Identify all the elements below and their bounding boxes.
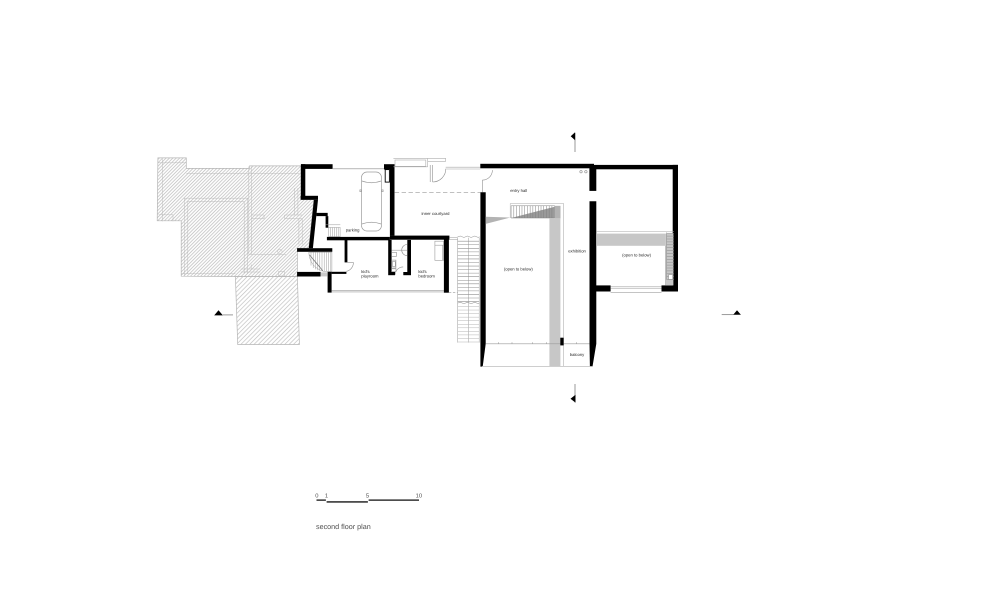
svg-text:bedroom: bedroom <box>418 273 435 278</box>
svg-text:(open to below): (open to below) <box>504 267 533 272</box>
svg-text:1: 1 <box>325 494 328 500</box>
svg-text:inner courtyard: inner courtyard <box>422 211 451 216</box>
svg-text:0: 0 <box>315 493 318 500</box>
svg-text:entry hall: entry hall <box>510 188 527 193</box>
svg-text:10: 10 <box>416 493 422 500</box>
svg-text:(open to below): (open to below) <box>622 252 651 257</box>
svg-text:exhibition: exhibition <box>568 249 586 254</box>
svg-text:playroom: playroom <box>361 273 379 278</box>
svg-text:second floor plan: second floor plan <box>316 522 371 531</box>
svg-text:parking: parking <box>346 227 360 232</box>
svg-text:5: 5 <box>366 494 369 500</box>
svg-text:balcony: balcony <box>570 352 585 357</box>
